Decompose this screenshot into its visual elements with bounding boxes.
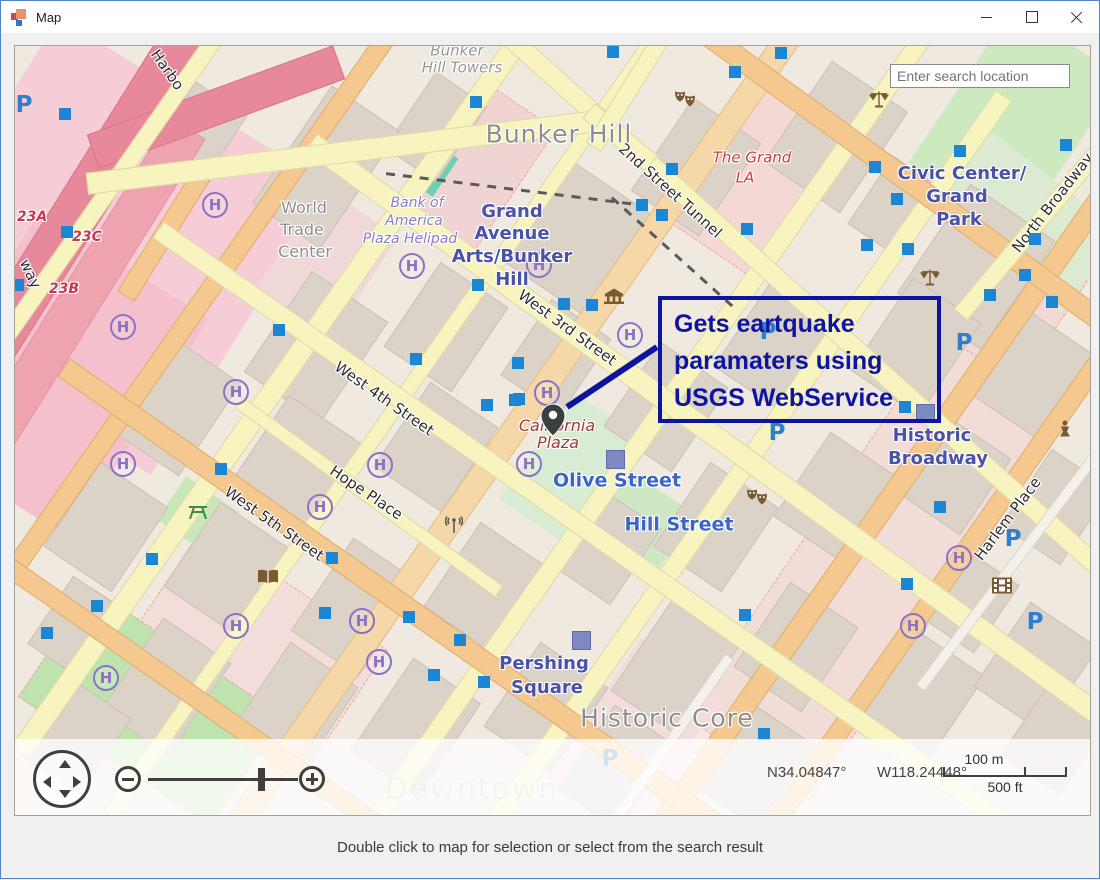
app-icon bbox=[11, 9, 28, 26]
map-marker[interactable] bbox=[326, 552, 338, 564]
helipad-icon: H bbox=[110, 314, 136, 340]
parking-icon: P bbox=[956, 330, 973, 356]
zoom-slider-thumb[interactable] bbox=[258, 768, 265, 791]
map-canvas[interactable]: HHHHHHHHHHHHHHHHHPPPPPPPBunker HillBunke… bbox=[14, 45, 1091, 816]
map-marker[interactable] bbox=[478, 676, 490, 688]
close-icon bbox=[1071, 11, 1083, 23]
map-marker[interactable] bbox=[954, 145, 966, 157]
pan-control[interactable] bbox=[33, 750, 91, 808]
helipad-icon: H bbox=[223, 379, 249, 405]
masks-icon bbox=[674, 92, 696, 113]
window-title: Map bbox=[36, 10, 61, 25]
map-marker[interactable] bbox=[902, 243, 914, 255]
map-marker[interactable] bbox=[41, 627, 53, 639]
film-icon bbox=[992, 578, 1012, 599]
map-marker[interactable] bbox=[901, 578, 913, 590]
minimize-icon bbox=[981, 17, 992, 18]
helipad-icon: H bbox=[223, 613, 249, 639]
map-marker[interactable] bbox=[146, 553, 158, 565]
map-label: America bbox=[385, 214, 443, 228]
map-marker[interactable] bbox=[428, 669, 440, 681]
masks-icon bbox=[746, 490, 768, 511]
map-marker[interactable] bbox=[470, 96, 482, 108]
map-marker[interactable] bbox=[666, 163, 678, 175]
map-label: Avenue bbox=[474, 225, 549, 243]
helipad-icon: H bbox=[202, 192, 228, 218]
map-marker[interactable] bbox=[1019, 269, 1031, 281]
statue-icon bbox=[1058, 421, 1072, 442]
map-marker[interactable] bbox=[410, 353, 422, 365]
map-marker[interactable] bbox=[775, 47, 787, 59]
scales-icon bbox=[869, 91, 889, 114]
parking-icon: P bbox=[1027, 609, 1044, 635]
book-icon bbox=[257, 570, 279, 591]
map-marker[interactable] bbox=[273, 324, 285, 336]
map-marker[interactable] bbox=[454, 634, 466, 646]
map-marker[interactable] bbox=[59, 108, 71, 120]
status-hint: Double click to map for selection or sel… bbox=[1, 814, 1099, 880]
maximize-icon bbox=[1026, 11, 1038, 23]
map-label: Square bbox=[511, 679, 583, 697]
search-input[interactable] bbox=[890, 64, 1070, 88]
map-label: The Grand bbox=[713, 151, 792, 166]
annotation-line: Gets eartquake bbox=[674, 306, 937, 343]
pan-up-arrow-icon[interactable] bbox=[59, 760, 71, 768]
map-label: 23A bbox=[17, 210, 47, 224]
app-window: { "window": { "title": "Map" }, "search"… bbox=[0, 0, 1100, 879]
map-label: Grand bbox=[481, 203, 543, 221]
map-label: Hill Street bbox=[624, 516, 733, 535]
map-marker[interactable] bbox=[215, 463, 227, 475]
map-label: LA bbox=[736, 171, 755, 186]
zoom-in-button[interactable] bbox=[299, 766, 325, 792]
map-marker[interactable] bbox=[934, 501, 946, 513]
title-bar: Map bbox=[1, 1, 1099, 33]
map-marker[interactable] bbox=[729, 66, 741, 78]
map-label: World bbox=[281, 200, 327, 216]
map-label: Bank of bbox=[390, 196, 443, 210]
map-marker[interactable] bbox=[607, 46, 619, 58]
map-marker[interactable] bbox=[984, 289, 996, 301]
helipad-icon: H bbox=[900, 613, 926, 639]
map-marker[interactable] bbox=[739, 609, 751, 621]
map-label: Bunker bbox=[430, 45, 483, 59]
helipad-icon: H bbox=[399, 253, 425, 279]
map-marker[interactable] bbox=[61, 226, 73, 238]
map-marker[interactable] bbox=[512, 357, 524, 369]
map-label: Historic bbox=[893, 427, 972, 445]
helipad-icon: H bbox=[110, 451, 136, 477]
helipad-icon: H bbox=[366, 649, 392, 675]
map-label: Trade bbox=[280, 222, 324, 238]
map-bottom-overlay: N34.04847° W118.24448° 100 m 500 ft bbox=[15, 739, 1090, 815]
parking-icon: P bbox=[769, 420, 786, 446]
map-marker[interactable] bbox=[741, 223, 753, 235]
map-marker[interactable] bbox=[509, 394, 521, 406]
scale-bar: 100 m 500 ft bbox=[943, 751, 1067, 797]
map-marker[interactable] bbox=[586, 299, 598, 311]
annotation-line: paramaters using bbox=[674, 343, 937, 380]
museum-icon bbox=[604, 289, 624, 310]
map-label: Pershing bbox=[499, 655, 589, 673]
map-marker[interactable] bbox=[656, 209, 668, 221]
map-label: Park bbox=[936, 211, 982, 229]
map-label: Olive Street bbox=[553, 472, 681, 491]
map-marker[interactable] bbox=[472, 279, 484, 291]
map-label: Plaza Helipad bbox=[363, 232, 458, 246]
pan-down-arrow-icon[interactable] bbox=[59, 790, 71, 798]
map-label: Civic Center/ bbox=[898, 165, 1027, 183]
latitude-readout: N34.04847° bbox=[767, 764, 846, 781]
maximize-button[interactable] bbox=[1009, 1, 1054, 33]
map-marker[interactable] bbox=[891, 193, 903, 205]
helipad-icon: H bbox=[307, 494, 333, 520]
map-marker[interactable] bbox=[91, 600, 103, 612]
picnic-icon bbox=[187, 504, 209, 524]
helipad-icon: H bbox=[367, 452, 393, 478]
pan-right-arrow-icon[interactable] bbox=[73, 776, 81, 788]
scale-feet-label: 500 ft bbox=[943, 779, 1067, 795]
annotation-line: USGS WebService bbox=[674, 380, 937, 417]
helipad-icon: H bbox=[516, 451, 542, 477]
parking-icon: P bbox=[16, 92, 33, 118]
scales-icon bbox=[920, 269, 940, 292]
map-marker[interactable] bbox=[481, 399, 493, 411]
map-marker[interactable] bbox=[319, 607, 331, 619]
pan-left-arrow-icon[interactable] bbox=[43, 776, 51, 788]
map-marker[interactable] bbox=[861, 239, 873, 251]
scale-meters-label: 100 m bbox=[943, 751, 1025, 767]
map-label: Bunker Hill bbox=[486, 122, 633, 147]
close-button[interactable] bbox=[1054, 1, 1099, 33]
map-label: 23C bbox=[72, 230, 102, 244]
zoom-slider-track[interactable] bbox=[148, 778, 298, 781]
map-label: Arts/Bunker bbox=[452, 248, 573, 266]
map-label: 23B bbox=[49, 282, 79, 296]
map-label: Grand bbox=[926, 188, 988, 206]
map-label: Historic Core bbox=[580, 706, 754, 731]
minimize-button[interactable] bbox=[964, 1, 1009, 33]
map-marker[interactable] bbox=[1046, 296, 1058, 308]
helipad-icon: H bbox=[946, 545, 972, 571]
helipad-icon: H bbox=[349, 608, 375, 634]
helipad-icon: H bbox=[617, 322, 643, 348]
map-marker[interactable] bbox=[1060, 139, 1072, 151]
minus-icon bbox=[122, 778, 134, 781]
zoom-out-button[interactable] bbox=[115, 766, 141, 792]
map-label: Center bbox=[278, 244, 332, 260]
map-marker[interactable] bbox=[869, 161, 881, 173]
map-marker[interactable] bbox=[636, 199, 648, 211]
helipad-icon: H bbox=[93, 665, 119, 691]
annotation-box: Gets eartquake paramaters using USGS Web… bbox=[658, 296, 941, 423]
map-marker[interactable] bbox=[403, 611, 415, 623]
location-pin[interactable] bbox=[540, 403, 566, 442]
map-label: Broadway bbox=[888, 450, 988, 468]
station-square bbox=[572, 631, 591, 650]
station-square bbox=[606, 450, 625, 469]
map-marker[interactable] bbox=[558, 298, 570, 310]
map-marker[interactable] bbox=[1029, 233, 1041, 245]
map-label: Hill Towers bbox=[422, 61, 503, 76]
antenna-icon bbox=[445, 516, 463, 538]
map-marker[interactable] bbox=[14, 279, 24, 291]
